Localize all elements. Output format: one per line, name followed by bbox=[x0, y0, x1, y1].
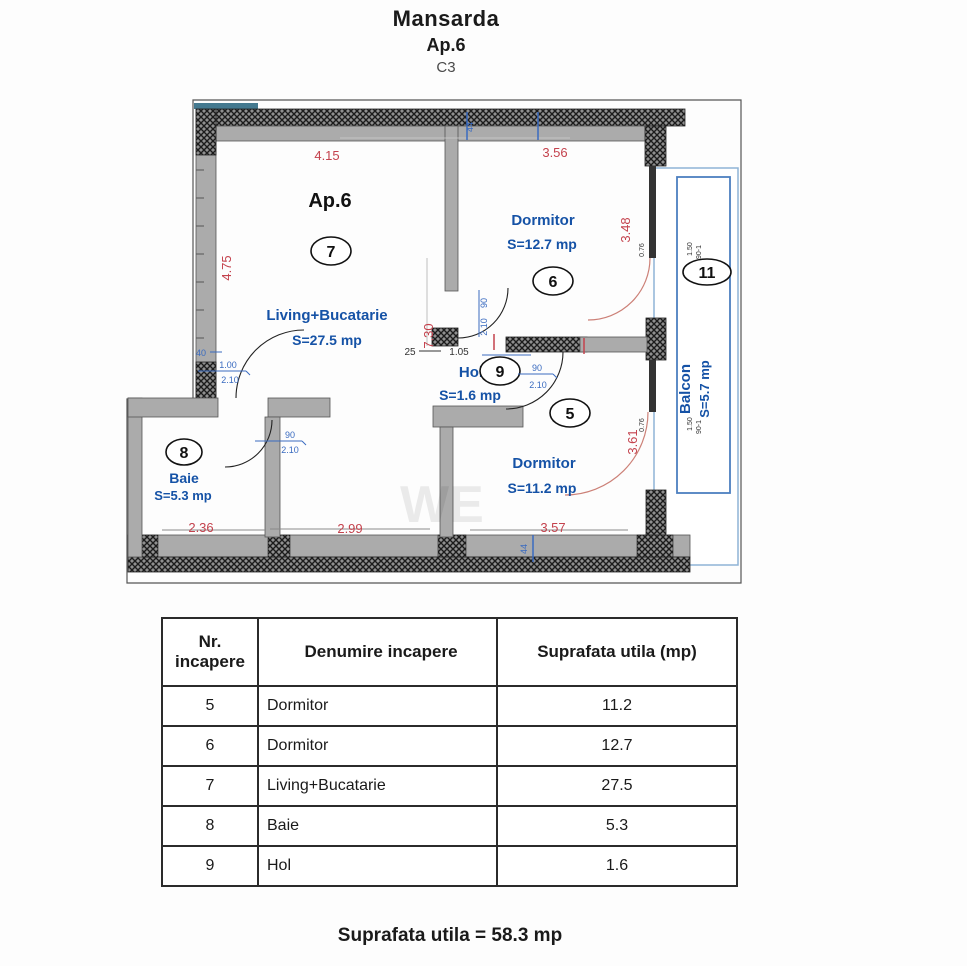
wall-left-pier-bottom bbox=[196, 362, 216, 400]
room-living-area: S=27.5 mp bbox=[292, 332, 362, 348]
table-row: 6 Dormitor 12.7 bbox=[162, 726, 737, 766]
room-balcon-area: S=5.7 mp bbox=[697, 360, 712, 418]
header-nr-line1: Nr. bbox=[164, 632, 256, 652]
room-dorm5-name: Dormitor bbox=[512, 455, 575, 472]
svg-text:5: 5 bbox=[566, 406, 575, 423]
svg-text:8: 8 bbox=[180, 445, 189, 462]
table-row: 5 Dormitor 11.2 bbox=[162, 686, 737, 726]
cell-nr: 6 bbox=[162, 726, 258, 766]
wall-top-hatched bbox=[200, 109, 685, 126]
table-row: 9 Hol 1.6 bbox=[162, 846, 737, 886]
header-nr-line2: incapere bbox=[164, 652, 256, 672]
cell-nr: 9 bbox=[162, 846, 258, 886]
cell-area: 1.6 bbox=[497, 846, 737, 886]
room-dorm6-name: Dormitor bbox=[511, 212, 574, 229]
dim-dorm5-bottom: 3.57 bbox=[540, 520, 565, 535]
wall-bottom-gray bbox=[128, 535, 690, 557]
svg-text:2.10: 2.10 bbox=[281, 445, 299, 455]
floor-plan-drawing: WE Ap.6 Living+Bucatarie S=27.5 mp Dormi… bbox=[0, 0, 967, 600]
room-number-living: 7 bbox=[311, 237, 351, 265]
wall-bottom-pier4 bbox=[637, 535, 673, 557]
svg-text:9: 9 bbox=[496, 364, 505, 381]
wall-right-pier3 bbox=[646, 490, 666, 537]
room-number-hol: 9 bbox=[480, 357, 520, 385]
room-number-dorm6: 6 bbox=[533, 267, 573, 295]
watermark: WE bbox=[400, 476, 484, 534]
dim-mid-vertical: 7.30 bbox=[421, 323, 436, 348]
svg-text:2.10: 2.10 bbox=[479, 318, 489, 336]
cell-name: Dormitor bbox=[258, 726, 497, 766]
svg-text:90-1: 90-1 bbox=[696, 420, 703, 434]
room-number-dorm5: 5 bbox=[550, 399, 590, 427]
dim-dorm6-right: 3.48 bbox=[618, 217, 633, 242]
wall-dorm6-hol bbox=[506, 337, 587, 352]
wall-left-pier-top bbox=[196, 109, 216, 155]
dim-living-left: 4.75 bbox=[219, 255, 234, 280]
cell-name: Baie bbox=[258, 806, 497, 846]
room-dorm5-area: S=11.2 mp bbox=[508, 480, 577, 496]
svg-text:90: 90 bbox=[532, 363, 542, 373]
cell-nr: 5 bbox=[162, 686, 258, 726]
room-area-table: Nr. incapere Denumire incapere Suprafata… bbox=[161, 617, 738, 887]
plan-apartment-label: Ap.6 bbox=[308, 190, 351, 212]
cell-area: 27.5 bbox=[497, 766, 737, 806]
total-usable-area: Suprafata utila = 58.3 mp bbox=[0, 925, 900, 947]
cell-nr: 8 bbox=[162, 806, 258, 846]
table-header-row: Nr. incapere Denumire incapere Suprafata… bbox=[162, 618, 737, 686]
wall-right-pier1 bbox=[645, 126, 666, 166]
svg-text:0.76: 0.76 bbox=[639, 418, 646, 432]
cell-nr: 7 bbox=[162, 766, 258, 806]
wall-baie-right bbox=[265, 417, 280, 537]
svg-text:40: 40 bbox=[196, 348, 206, 358]
header-denumire: Denumire incapere bbox=[258, 618, 497, 686]
dim-dorm6-top: 3.56 bbox=[542, 145, 567, 160]
dim-baie-bottom: 2.36 bbox=[188, 520, 213, 535]
svg-text:44: 44 bbox=[519, 544, 529, 554]
wall-top-gray bbox=[216, 126, 646, 141]
svg-text:2.10: 2.10 bbox=[221, 375, 239, 385]
wall-right-glazing1 bbox=[649, 166, 656, 258]
wall-bottom-hatched bbox=[128, 557, 690, 572]
wall-baie-left bbox=[128, 398, 142, 557]
door-label-hol-dorm6: 90 2.10 bbox=[479, 290, 489, 337]
cell-area: 11.2 bbox=[497, 686, 737, 726]
room-balcon-name: Balcon bbox=[677, 364, 694, 414]
dim-dorm5-right: 3.61 bbox=[625, 429, 640, 454]
svg-text:11: 11 bbox=[699, 265, 716, 282]
cell-area: 5.3 bbox=[497, 806, 737, 846]
balcony-inner-outline bbox=[677, 177, 730, 493]
wall-top-accent bbox=[194, 103, 258, 109]
svg-text:1.50: 1.50 bbox=[687, 417, 694, 431]
table-row: 7 Living+Bucatarie 27.5 bbox=[162, 766, 737, 806]
svg-text:0.76: 0.76 bbox=[639, 243, 646, 257]
svg-text:90: 90 bbox=[285, 430, 295, 440]
door-label-hol-dorm5: 90 2.10 bbox=[518, 363, 557, 390]
balcony-door-arc-dorm6 bbox=[588, 258, 650, 320]
wall-living-dorm6 bbox=[445, 126, 458, 291]
svg-text:6: 6 bbox=[549, 274, 558, 291]
wall-bottom-pier3 bbox=[438, 535, 466, 557]
wall-dorm6-dorm5 bbox=[580, 337, 647, 352]
wall-baie-top-left bbox=[128, 398, 218, 417]
room-dorm6-area: S=12.7 mp bbox=[507, 236, 577, 252]
scanned-floor-plan-page: Mansarda Ap.6 C3 bbox=[0, 0, 967, 966]
door-label-baie: 90 2.10 bbox=[255, 430, 306, 455]
svg-text:7: 7 bbox=[327, 244, 336, 261]
svg-text:90-1: 90-1 bbox=[696, 245, 703, 259]
room-baie-area: S=5.3 mp bbox=[154, 488, 212, 503]
svg-text:25: 25 bbox=[404, 347, 416, 358]
room-living-name: Living+Bucatarie bbox=[266, 307, 387, 324]
cell-area: 12.7 bbox=[497, 726, 737, 766]
header-suprafata: Suprafata utila (mp) bbox=[497, 618, 737, 686]
wall-right-pier2 bbox=[646, 318, 666, 360]
svg-text:44: 44 bbox=[465, 122, 475, 132]
room-hol-area: S=1.6 mp bbox=[439, 387, 501, 403]
dim-living-top: 4.15 bbox=[314, 148, 339, 163]
svg-text:90: 90 bbox=[479, 298, 489, 308]
header-nr-incapere: Nr. incapere bbox=[162, 618, 258, 686]
svg-text:1.50: 1.50 bbox=[687, 242, 694, 256]
wall-right-glazing2 bbox=[649, 360, 656, 412]
dim-living-bottom: 2.99 bbox=[337, 521, 362, 536]
wall-baie-top-right bbox=[268, 398, 330, 417]
svg-text:1.00: 1.00 bbox=[219, 360, 237, 370]
cell-name: Dormitor bbox=[258, 686, 497, 726]
cell-name: Hol bbox=[258, 846, 497, 886]
table-row: 8 Baie 5.3 bbox=[162, 806, 737, 846]
svg-text:2.10: 2.10 bbox=[529, 380, 547, 390]
svg-text:1.05: 1.05 bbox=[449, 347, 469, 358]
room-number-baie: 8 bbox=[166, 439, 202, 465]
room-number-balcon: 11 bbox=[683, 259, 731, 285]
wall-bottom-pier2 bbox=[268, 535, 290, 557]
room-baie-name: Baie bbox=[169, 470, 199, 486]
cell-name: Living+Bucatarie bbox=[258, 766, 497, 806]
